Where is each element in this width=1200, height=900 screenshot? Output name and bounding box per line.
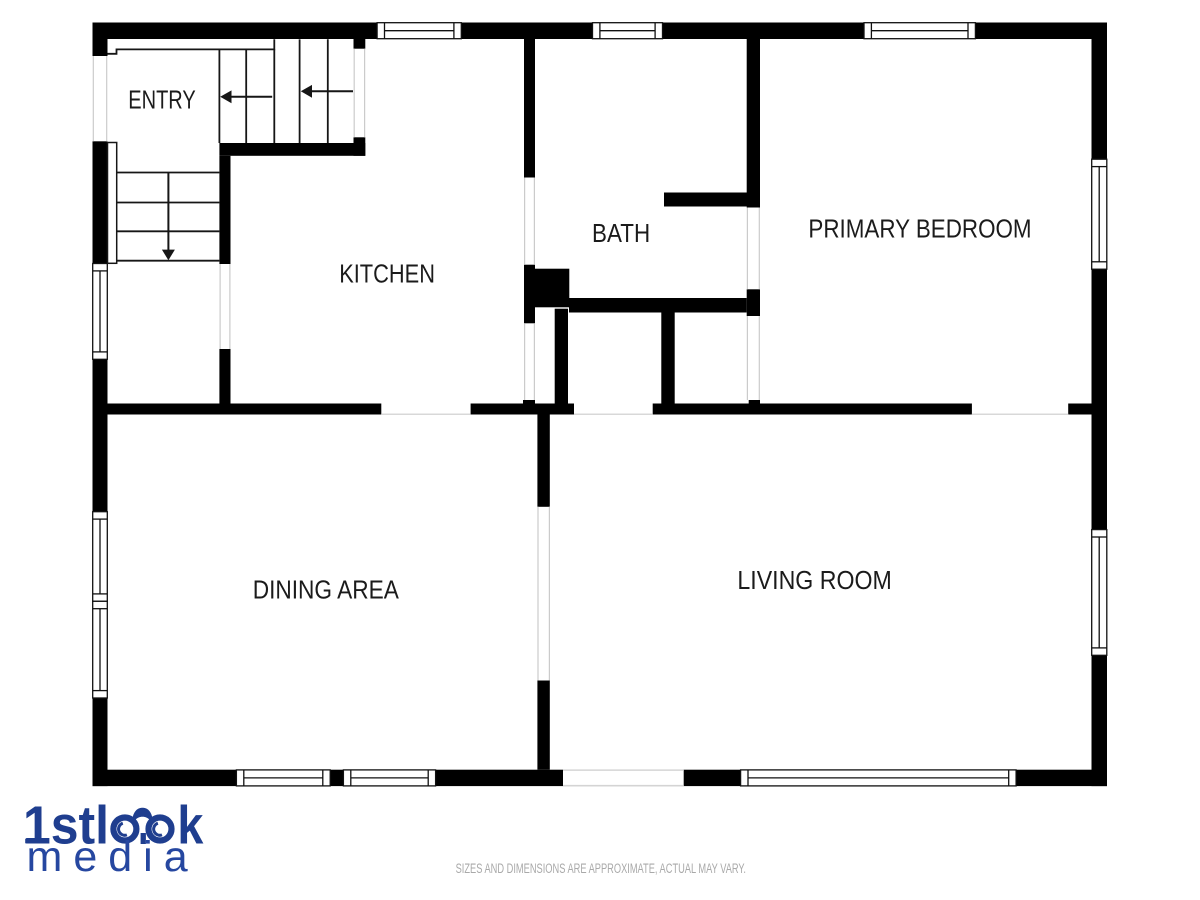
svg-text:KITCHEN: KITCHEN	[339, 258, 435, 288]
svg-text:ENTRY: ENTRY	[128, 85, 196, 115]
svg-text:DINING AREA: DINING AREA	[253, 574, 400, 604]
svg-text:LIVING ROOM: LIVING ROOM	[737, 565, 891, 595]
svg-text:PRIMARY BEDROOM: PRIMARY BEDROOM	[808, 214, 1031, 244]
svg-text:BATH: BATH	[592, 218, 650, 248]
svg-text:media: media	[27, 833, 199, 881]
svg-text:SIZES AND DIMENSIONS ARE APPRO: SIZES AND DIMENSIONS ARE APPROXIMATE, AC…	[456, 861, 746, 876]
